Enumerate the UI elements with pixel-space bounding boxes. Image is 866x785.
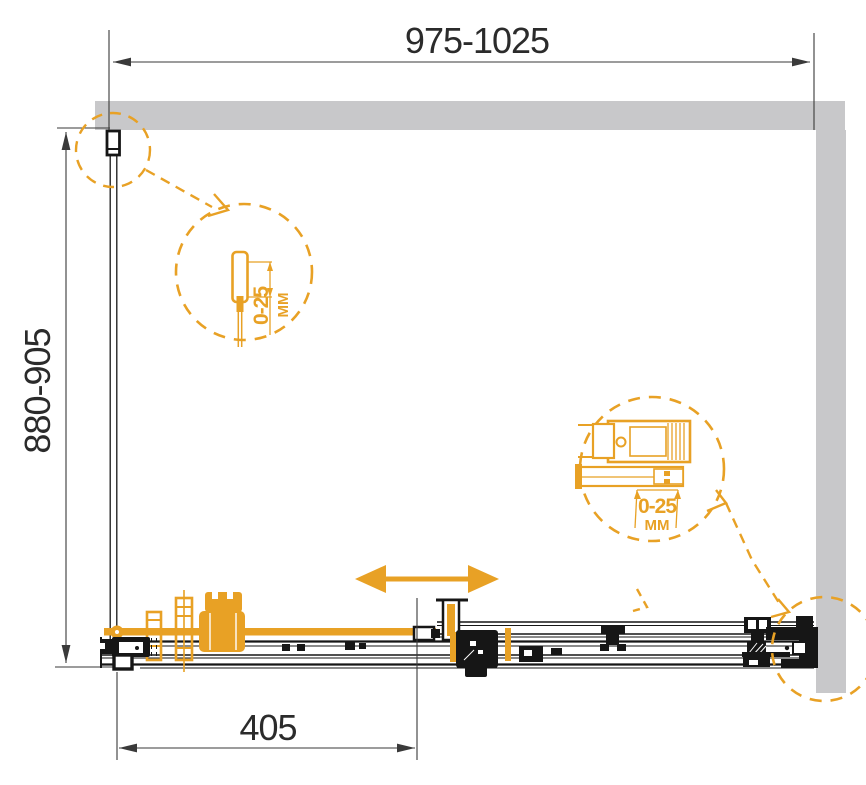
diagram-canvas: 975-1025 880-905 [0,0,866,785]
foot-notch [749,660,758,665]
clamp-foot [617,644,626,651]
corner-slot [793,642,806,654]
roller-assembly-left [104,590,436,672]
arrowhead-right [468,565,499,593]
end-tab-notch [100,643,105,649]
detail-left: 0-25 MM [176,204,312,347]
arrowhead-left [113,58,131,67]
bracket-hole [759,620,767,629]
roller-drum [199,611,245,652]
leader-line [726,503,781,606]
leader-line [146,170,212,207]
bar-end-hole [115,630,119,634]
wall-bracket-detail [593,424,614,458]
rail-clamp-middle [600,626,626,651]
profile-tube [233,252,248,302]
detail-left-unit: MM [275,293,292,318]
dim-arrow [267,262,273,271]
arrowhead-left [355,565,386,593]
bracket-hole [748,620,756,629]
detail-left-range: 0-25 [250,286,273,325]
arrowhead-left [119,744,137,753]
detail-right-range: 0-25 [638,495,677,518]
carriage-orange-left [450,632,457,662]
screw-dot [135,646,139,650]
corner-tab [796,616,813,628]
arrowhead-right [792,58,810,67]
leader-arrow [771,599,789,617]
clamp-body [606,632,619,645]
corner-foot [781,659,818,668]
arrowhead-right [397,744,415,753]
rail-nub [359,643,366,649]
side-glass-panel [107,131,120,645]
carriage-orange-right [505,628,511,661]
wall-right [816,130,846,693]
rail-inner [630,427,666,456]
rail-nub [551,648,562,655]
connector-bar [742,652,790,657]
arrowhead-bottom [62,645,71,663]
carriage-mark [470,641,476,646]
rail-nub [282,644,290,651]
adjustment-bar [104,628,436,636]
dimension-top-label: 975-1025 [405,20,549,61]
bracket-notch [227,592,233,599]
carriage-block [456,630,498,668]
floor-guide [114,655,132,669]
rail-nub [297,644,305,651]
slider-mark [664,471,670,476]
clamp-foot [600,644,609,651]
post-insert [447,604,455,636]
leader-arrow [208,194,228,216]
rail-nub [345,641,355,650]
profile-insert [237,296,244,312]
screw-dot [785,646,789,650]
wall-top [95,101,845,130]
wall-profile [107,131,120,155]
carriage-foot [465,666,487,677]
dimension-left-depth: 880-905 [17,128,113,667]
leader-left-detail [146,170,228,216]
shower-enclosure-installation-diagram: 975-1025 880-905 [0,0,866,785]
roller-bracket [205,592,242,612]
end-cap-slot [119,642,143,653]
bracket-stem [751,632,764,641]
screw-circle [617,438,626,447]
arrowhead-top [62,132,71,150]
detail-right-unit: MM [645,517,670,534]
dimension-left-label: 880-905 [17,328,58,453]
slider-mark [664,479,670,484]
bracket-notch [212,592,218,599]
carriage-mark [478,650,483,654]
bar-end-cap [575,464,582,489]
leader-arrow [633,589,647,611]
dimension-bottom-label: 405 [239,707,296,748]
coupler-block [431,629,440,638]
clamp-slot [524,650,532,656]
slide-direction-arrow [355,565,499,593]
detail-right: 0-25 MM [575,397,724,541]
